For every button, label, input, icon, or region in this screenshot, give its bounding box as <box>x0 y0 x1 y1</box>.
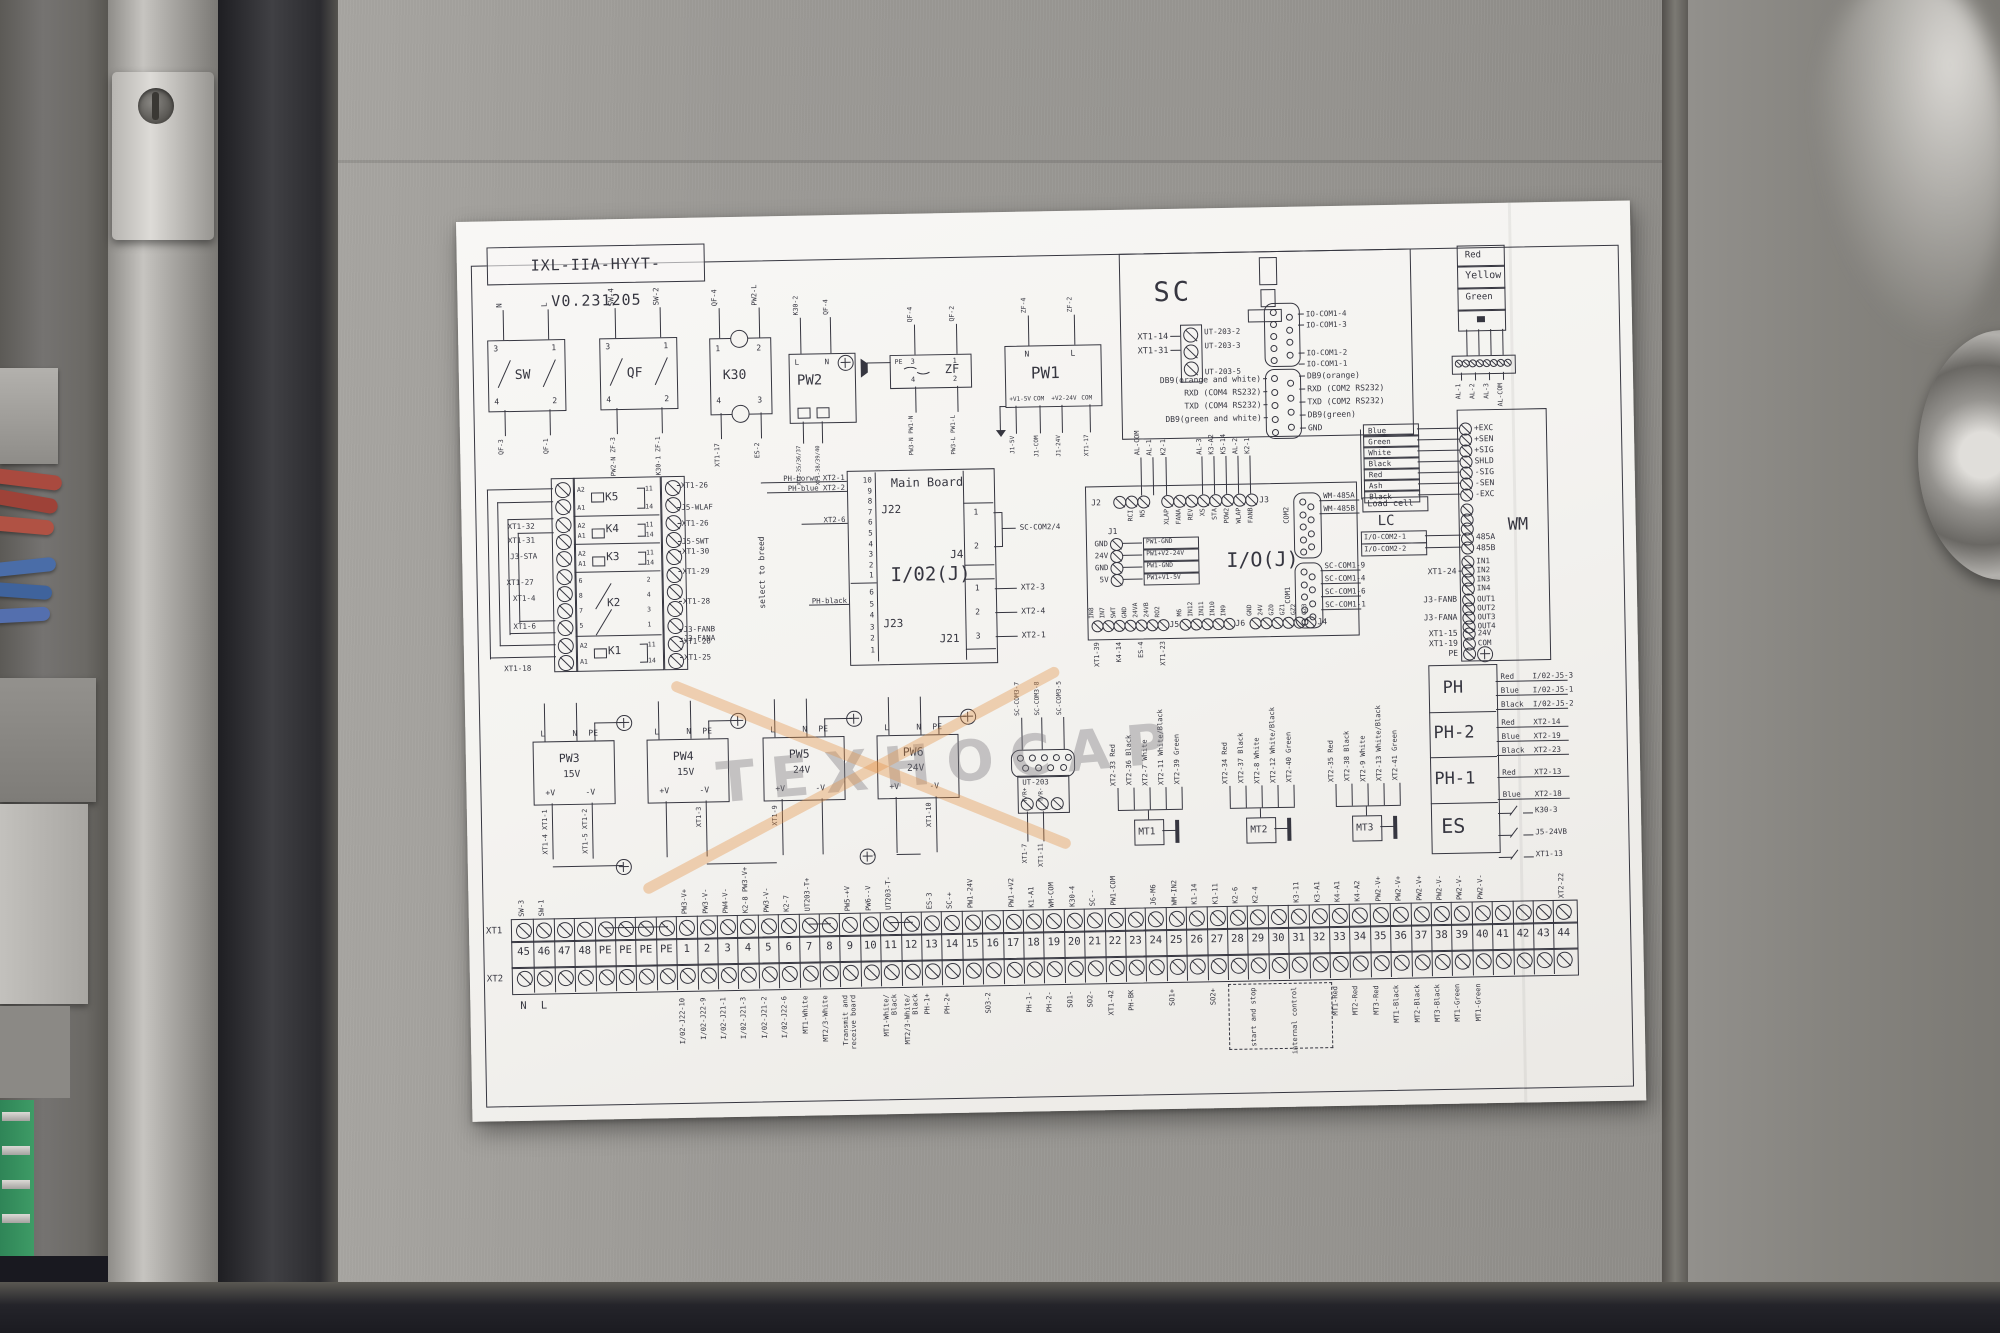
connector-pin <box>1300 568 1307 575</box>
wire <box>915 387 917 413</box>
strip-screw-xt1 <box>516 923 532 939</box>
strip-bottom-label: SO2- <box>1087 990 1094 1007</box>
connector-pin <box>1287 380 1294 387</box>
connector-pin <box>1301 581 1308 588</box>
label: I/02-J5-3 <box>1532 672 1573 680</box>
lamp-label: Red <box>1465 251 1481 260</box>
strip-screw-xt1 <box>577 922 593 938</box>
wm-terminal: +SIG <box>1474 446 1493 454</box>
wire <box>803 422 805 444</box>
strip-bottom-label: MT2/3-White <box>822 995 830 1041</box>
label: 14 <box>646 559 654 566</box>
strip-top-label: ES-3 <box>926 893 933 910</box>
strip-screw-xt1 <box>1373 907 1389 923</box>
wire <box>1170 350 1180 351</box>
terminal-clip <box>2 1146 30 1155</box>
strip-top-label: K3-A1 <box>1314 881 1321 902</box>
strip-screw-xt2 <box>1537 952 1553 968</box>
k30-notch <box>731 405 749 423</box>
panel-seam-right <box>1662 0 1688 1333</box>
strip-bottom-label: MT2-Black <box>1414 984 1422 1022</box>
screw-terminal <box>558 655 574 671</box>
screw-terminal <box>557 586 573 602</box>
vertical-label: IN9 <box>1221 605 1228 616</box>
motor-label: MT2 <box>1250 825 1267 835</box>
label: GND <box>1082 564 1108 572</box>
wire <box>1287 818 1291 841</box>
psu-voltage: 15V <box>563 770 580 780</box>
strip-screw-xt1 <box>1005 914 1021 930</box>
wire <box>1149 787 1151 809</box>
vertical-label: XT2-39 Green <box>1174 734 1182 785</box>
psu-voltage: 24V <box>907 764 924 774</box>
wire <box>1263 404 1267 405</box>
control-group-outline <box>1228 982 1333 1050</box>
connector-pin <box>1271 357 1278 364</box>
strip-bottom-label: MT3-Black <box>1434 984 1442 1022</box>
label: IN4 <box>1477 584 1491 592</box>
strip-screw-xt1 <box>1311 908 1327 924</box>
strip-screw-xt2 <box>1047 961 1063 977</box>
vertical-label: XT2-38 Black <box>1343 731 1351 782</box>
label: +V <box>659 787 669 795</box>
strip-screw-xt2 <box>721 967 737 983</box>
wire <box>1015 406 1017 434</box>
terminal-clip <box>2 1180 30 1189</box>
label: COM <box>1033 396 1044 402</box>
vertical-label: AL-3 <box>1483 383 1490 399</box>
psu-voltage: 15V <box>677 768 694 778</box>
terminal-number: 44 <box>1554 928 1575 939</box>
label: 1 <box>973 508 978 516</box>
connector-pin <box>1301 593 1308 600</box>
wire <box>1298 313 1304 314</box>
wire <box>993 512 1001 513</box>
vertical-label: XT1-5 XT1-2 <box>582 809 590 854</box>
strip-screw-xt2 <box>1557 952 1573 968</box>
label: K30-3 <box>1535 806 1558 814</box>
strip-screw-xt1 <box>1046 913 1062 929</box>
screw-terminal <box>555 499 571 515</box>
label: A1 <box>578 561 586 568</box>
vertical-label: SC-COM3-7 <box>1015 682 1022 716</box>
label: PH-black <box>763 597 847 606</box>
strip-screw-xt2 <box>517 971 533 987</box>
label: J21 <box>940 633 960 644</box>
wire <box>1074 315 1076 345</box>
strip-screw-xt2 <box>1271 957 1287 973</box>
strip-top-label: PW6--V <box>865 885 872 910</box>
label: 6 <box>859 588 874 596</box>
vertical-label: GND <box>1247 604 1254 615</box>
terminal-number: 41 <box>1492 929 1513 940</box>
label: UT-203-3 <box>1204 342 1240 350</box>
vertical-label: XT1-11 <box>1037 843 1044 867</box>
label: XT1-26 <box>681 481 708 489</box>
wire <box>487 489 491 659</box>
strip-screw-xt1 <box>1148 911 1164 927</box>
label: XT1-27 <box>507 579 534 587</box>
terminal-number: 27 <box>1207 934 1228 945</box>
vertical-label: ZF-4 <box>1020 298 1027 314</box>
component-label: QF <box>627 367 643 380</box>
strip-screw-xt2 <box>1333 956 1349 972</box>
label: N <box>825 358 830 366</box>
strip-screw-xt1 <box>1169 911 1185 927</box>
psu-label: PW5 <box>789 749 810 761</box>
wire <box>679 629 682 630</box>
wire <box>897 854 921 856</box>
label: WM-485B <box>1323 505 1355 513</box>
terminal-number: 2 <box>697 943 718 954</box>
wire <box>678 541 681 542</box>
strip-screw-xt1 <box>822 917 838 933</box>
wire <box>487 488 553 490</box>
strip-screw-xt1 <box>638 920 654 936</box>
label: J3-FANB <box>1393 596 1457 605</box>
wire <box>1201 456 1203 494</box>
label: PH-blue XT2-2 <box>755 484 845 493</box>
strip-screw-xt2 <box>1312 956 1328 972</box>
connector-pin <box>1308 530 1315 537</box>
wire-color: Black <box>1501 701 1524 709</box>
wire <box>1299 388 1305 389</box>
strip-top-label: PW2-V+ <box>1416 875 1423 900</box>
cabinet-base <box>0 1282 2000 1333</box>
vertical-label: XT2-34 Red <box>1222 742 1230 784</box>
gray-connector-block <box>0 368 58 464</box>
wire <box>592 803 594 859</box>
terminal-number: 38 <box>1431 930 1452 941</box>
wire <box>806 699 808 737</box>
screw-terminal <box>667 584 683 600</box>
strip-screw-xt2 <box>1353 955 1369 971</box>
connector-pin <box>1300 536 1307 543</box>
wire <box>678 551 681 552</box>
strip-screw-xt2 <box>1129 960 1145 976</box>
wire <box>1524 856 1534 857</box>
label: 24V <box>1478 629 1492 637</box>
connector-pin <box>1309 600 1316 607</box>
wire <box>1175 820 1179 843</box>
vertical-label: GND <box>1122 606 1129 617</box>
connector-pin <box>1017 755 1024 762</box>
strip-screw-xt1 <box>1495 905 1511 921</box>
vertical-label: 24VB <box>1144 602 1151 617</box>
vertical-label: ES-2 <box>754 442 761 458</box>
strip-screw-xt1 <box>1536 904 1552 920</box>
wire <box>679 601 682 602</box>
vertical-label: K5-14 <box>1220 433 1227 454</box>
strip-screw-xt1 <box>781 918 797 934</box>
wire <box>1418 461 1460 463</box>
vertical-label: XT1-17 <box>1084 434 1090 456</box>
label: XT2-1 <box>1022 631 1046 639</box>
wire <box>678 571 681 572</box>
vertical-label: COM1 <box>1285 587 1292 604</box>
terminal-number: 17 <box>1003 938 1024 949</box>
strip-screw-xt1 <box>944 915 960 931</box>
strip-bottom-label: PH-1- <box>1026 992 1033 1013</box>
wire <box>497 501 553 503</box>
wire <box>594 723 596 741</box>
strip-bottom-label: receive board <box>851 995 859 1050</box>
terminal-number: 4 <box>738 943 759 954</box>
wire-color: Black <box>1369 459 1392 467</box>
terminal-number: 31 <box>1288 932 1309 943</box>
screw-terminal <box>666 566 682 582</box>
chip-label: I/02(J) <box>890 565 970 585</box>
vertical-label: K2-1 <box>1244 437 1251 453</box>
label: 14 <box>645 503 653 510</box>
strip-top-label: PW4-V- <box>722 888 729 913</box>
terminal-number: 6 <box>778 942 799 953</box>
label: XT1-29 <box>682 567 709 575</box>
strip-top-label: PW1-24V <box>967 879 975 909</box>
label: 485A <box>1476 533 1495 541</box>
label: OUT2 <box>1477 604 1495 612</box>
screw-terminal <box>666 532 682 548</box>
connector-pin <box>1270 333 1277 340</box>
wire <box>1261 785 1263 807</box>
lamp-label: Yellow <box>1465 271 1501 282</box>
wire <box>1417 428 1459 430</box>
label: PW2 <box>797 373 823 387</box>
screw-terminal <box>1461 541 1474 554</box>
strip-screw-xt2 <box>558 970 574 986</box>
wire-color: White <box>1368 448 1391 456</box>
sensor-PH-2: PH-2 <box>1433 724 1474 742</box>
psu-label: PW6 <box>903 747 924 759</box>
terminal-number: 13 <box>921 939 942 950</box>
label: 11 <box>645 485 653 492</box>
screw-terminal <box>1021 798 1034 811</box>
label: J1 <box>1108 528 1118 536</box>
wire <box>994 546 1002 547</box>
main-board-title: Main Board <box>891 476 963 489</box>
strip-bottom-label: Black <box>891 994 898 1015</box>
wire <box>1299 401 1305 402</box>
wire <box>920 697 922 735</box>
wire <box>1418 483 1460 485</box>
vertical-label: QF-4 <box>822 300 829 316</box>
label: 3 <box>647 606 651 613</box>
terminal-number: 39 <box>1452 930 1473 941</box>
terminal-number: 45 <box>513 947 534 958</box>
wire <box>1299 352 1305 353</box>
wire <box>1523 812 1533 813</box>
strip-screw-xt2 <box>537 970 553 986</box>
connector-pin <box>1271 402 1278 409</box>
screw-terminal <box>555 517 571 533</box>
strip-bottom-label: I/02-J22-10 <box>679 998 687 1044</box>
label: PW1-GND <box>1146 563 1173 570</box>
indicator-box <box>1259 257 1278 285</box>
label: GND <box>1082 540 1108 548</box>
label: 1 <box>858 572 873 580</box>
screw-terminal <box>556 568 572 584</box>
strip-screw-xt1 <box>679 920 695 936</box>
strip-screw-xt1 <box>1454 906 1470 922</box>
label: 6 <box>858 519 873 527</box>
ut203-label: UT-203 <box>1022 778 1048 786</box>
contact-symbol <box>640 644 648 663</box>
sensor-ES: ES <box>1441 816 1465 836</box>
coil-symbol <box>594 648 607 658</box>
wire <box>1225 456 1227 494</box>
label: J5-SWT <box>682 537 709 545</box>
strip-screw-xt1 <box>1291 909 1307 925</box>
label: PE <box>895 359 903 366</box>
label: 9 <box>857 487 872 495</box>
sensor-PH: PH <box>1443 680 1464 697</box>
screw-terminal <box>555 482 571 498</box>
wire <box>1490 329 1492 355</box>
label: A2 <box>580 643 588 650</box>
label: J3 <box>1259 496 1269 504</box>
strip-bottom-label: MT2-Red <box>1353 986 1361 1016</box>
strip-screw-xt1 <box>1189 910 1205 926</box>
wire <box>1335 784 1337 806</box>
terminal-number: 40 <box>1472 929 1493 940</box>
strip-screw-xt1 <box>1413 906 1429 922</box>
strip-bottom-label: L <box>541 1000 548 1011</box>
vertical-label: 24VA <box>1133 602 1140 617</box>
wire <box>822 421 824 443</box>
vertical-label: XT1-39 <box>1094 642 1101 667</box>
wire <box>1417 450 1459 452</box>
vertical-label: XLAP <box>1163 509 1170 525</box>
wire <box>1237 456 1239 494</box>
wire <box>1299 375 1305 376</box>
wire <box>490 656 556 658</box>
label: J22 <box>881 504 901 515</box>
wire <box>1148 810 1149 819</box>
wire <box>500 644 556 646</box>
strip-bottom-label: SO2+ <box>1210 988 1217 1005</box>
screw-terminal <box>1183 344 1198 359</box>
vertical-label: PW3-L PW1-L <box>951 415 958 455</box>
connector-pin <box>1300 548 1307 555</box>
wm-terminal: -SIG <box>1475 468 1494 476</box>
strip-screw-xt1 <box>557 922 573 938</box>
screw-terminal <box>1463 647 1476 660</box>
label: PE <box>588 729 598 737</box>
vertical-label: L <box>540 303 548 308</box>
label: 1 <box>975 584 980 592</box>
wire <box>1260 808 1261 817</box>
vertical-label: AL-1 <box>1146 439 1153 455</box>
strip-screw-xt2 <box>1292 957 1308 973</box>
strip-screw-xt2 <box>1210 958 1226 974</box>
label: XT1-30 <box>682 547 709 555</box>
label: XT1-28 <box>683 597 710 605</box>
vertical-label: 24V <box>1258 604 1265 615</box>
strip-screw-xt1 <box>1087 912 1103 928</box>
wire <box>830 317 832 353</box>
wire <box>680 638 683 639</box>
panel-seam <box>338 160 1662 163</box>
vertical-label: STA <box>1211 508 1218 520</box>
vertical-label: QF-4 <box>907 307 914 323</box>
coil-symbol <box>592 528 605 538</box>
vertical-label: XT2-12 White/Black <box>1269 707 1277 783</box>
strip-top-label: PW1-+V2 <box>1008 878 1016 908</box>
wire <box>1293 785 1295 807</box>
strip-screw-xt1 <box>1474 905 1490 921</box>
strip-top-label: SC-- <box>1090 890 1097 907</box>
strip-screw-xt2 <box>1006 962 1022 978</box>
strip-screw-xt2 <box>1108 960 1124 976</box>
vertical-label: IN12 <box>1188 601 1195 616</box>
label: XT1-26 <box>681 519 708 527</box>
strip-top-label: K4-A2 <box>1355 880 1362 901</box>
strip-top-label: K30-4 <box>1069 886 1076 907</box>
label: XT2-6 <box>781 516 845 524</box>
label: DB9(orange) <box>1307 371 1360 380</box>
screw-terminal <box>1183 327 1198 342</box>
label: 2 <box>552 397 557 405</box>
wire <box>1459 571 1462 572</box>
wire <box>1118 809 1183 811</box>
psu-label: PW4 <box>673 751 694 763</box>
screw-terminal <box>1460 488 1473 501</box>
label: J23 <box>883 618 903 629</box>
label: SC-COM1-6 <box>1325 587 1366 595</box>
label: IN1 <box>1476 557 1490 565</box>
label: I/O-COM2-1 <box>1364 533 1406 541</box>
strip-screw-xt2 <box>823 965 839 981</box>
screw-terminal <box>1245 493 1258 506</box>
terminal-number: 47 <box>554 946 575 957</box>
wire-color: Ash <box>1369 482 1383 490</box>
label: 11 <box>648 641 656 648</box>
strip-screw-xt1 <box>924 915 940 931</box>
label: 6 <box>579 578 583 585</box>
vertical-label: N5 <box>1139 509 1146 517</box>
strip-bottom-label: MT1-Black <box>1393 985 1401 1023</box>
label: 2 <box>975 608 980 616</box>
label: 14 <box>648 657 656 664</box>
wire <box>1117 788 1119 810</box>
wire <box>874 854 875 855</box>
ground-symbol <box>846 711 862 727</box>
wire <box>896 797 898 853</box>
connector-pin <box>1035 764 1042 771</box>
wire <box>1393 816 1397 839</box>
vertical-label: K30-1 ZF-1 <box>655 436 662 475</box>
strip-bottom-label: XT1-42 <box>1108 990 1115 1015</box>
ground-symbol <box>860 848 876 864</box>
label: PW1+V1-5V <box>1147 575 1181 582</box>
wire <box>1089 404 1091 432</box>
label: J5-WLAF <box>681 503 713 511</box>
strip-screw-xt1 <box>740 919 756 935</box>
strip-top-label: PW2-V- <box>1436 875 1443 900</box>
strip-bottom-label: N <box>520 1001 527 1012</box>
label: J3-FANB <box>683 625 715 633</box>
strip-bottom-label: I/02-J21-1 <box>720 997 728 1039</box>
wm-terminal: SHLD <box>1474 457 1493 465</box>
strip-bottom-label: I/02-J22-9 <box>700 998 708 1040</box>
strip-screw-xt2 <box>700 967 716 983</box>
label: 24V <box>1082 552 1108 560</box>
wm-terminal: -EXC <box>1475 490 1494 498</box>
strip-screw-xt2 <box>598 969 614 985</box>
strip-screw-xt2 <box>1067 961 1083 977</box>
connector-pin <box>1286 326 1293 333</box>
terminal-number: 9 <box>840 941 861 952</box>
